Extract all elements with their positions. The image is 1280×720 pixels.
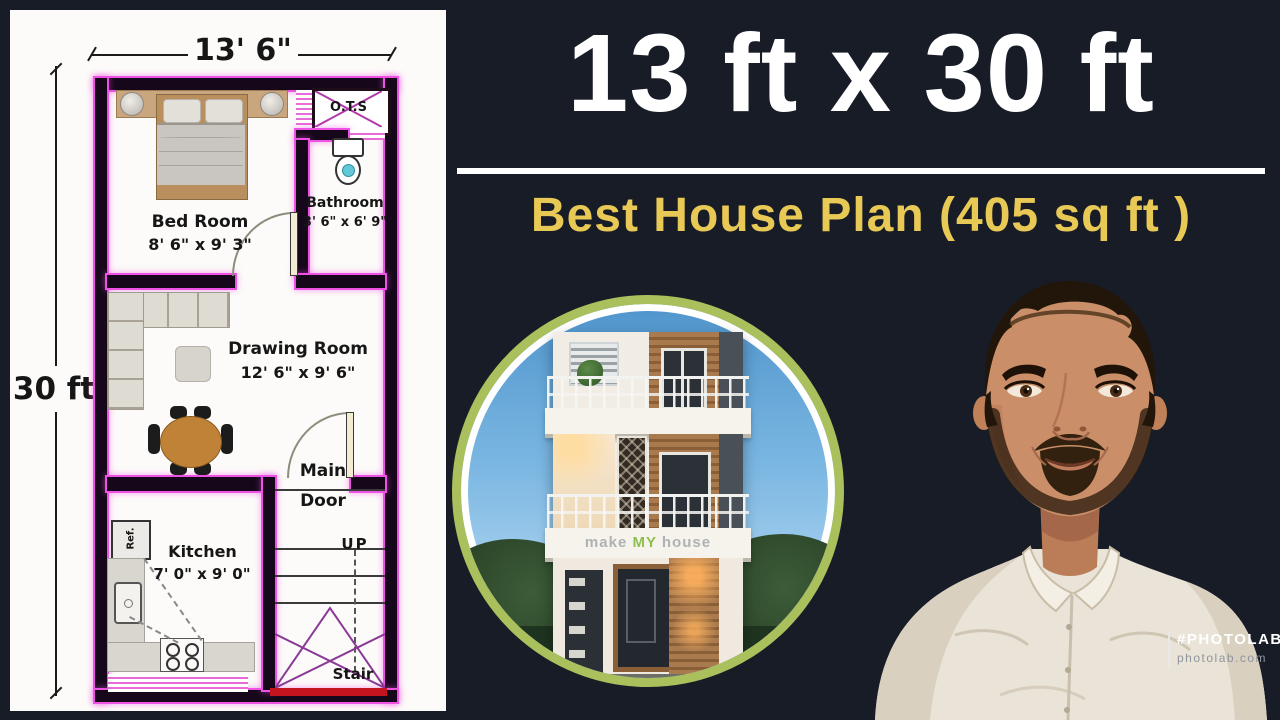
toilet-bowl-icon — [335, 155, 361, 185]
wall-kitchen-stair — [263, 477, 275, 690]
main-entrance-door — [613, 564, 675, 672]
stair-up-label: UP — [332, 536, 378, 553]
wood-panel-ground — [669, 558, 719, 678]
wall-drawing-bottom — [107, 477, 273, 491]
bedside-lamp-left — [120, 92, 144, 116]
pillow-left — [163, 99, 201, 123]
house-front: make MY house — [553, 332, 743, 678]
wall-bathroom-bottom — [296, 275, 385, 288]
kitchen-dims-label: 7' 0" x 9' 0" — [138, 566, 266, 583]
stair-label: Stair — [320, 666, 386, 683]
ots-hatch-left — [296, 90, 312, 130]
left-dimension-line-top — [55, 66, 57, 366]
brand-band: make MY house — [545, 528, 751, 562]
house-base-shadow — [545, 674, 751, 680]
bedroom-dims-label: 8' 6" x 9' 3" — [115, 236, 285, 254]
bedroom-name-label: Bed Room — [120, 213, 280, 232]
refrigerator-label: Ref. — [126, 521, 137, 557]
subtitle: Best House Plan (405 sq ft ) — [450, 188, 1272, 243]
stair-red-sill — [270, 688, 387, 696]
ots-box: O.T.S — [312, 88, 391, 136]
side-door-panel — [565, 570, 603, 678]
stair-tread — [275, 575, 385, 577]
wall-bedroom-bottom — [107, 275, 235, 288]
wall-left — [95, 78, 107, 702]
refrigerator: Ref. — [111, 520, 151, 560]
bathroom-name-label: Bathroom — [300, 196, 390, 211]
watermark-divider — [1168, 632, 1170, 668]
wall-right — [385, 78, 397, 702]
brand-watermark: make MY house — [545, 528, 751, 558]
main-title: 13 ft x 30 ft — [450, 16, 1272, 132]
kitchen-name-label: Kitchen — [150, 543, 255, 561]
kitchen-stove — [160, 638, 204, 672]
left-dimension-label: 30 ft — [8, 372, 100, 406]
bedside-lamp-right — [260, 92, 284, 116]
floor-plan-panel: 13' 6" 30 ft O.T.S — [10, 10, 446, 711]
pillow-right — [205, 99, 243, 123]
title-separator — [457, 168, 1265, 174]
balcony-railing-top — [547, 376, 749, 411]
dining-chair — [148, 424, 160, 454]
left-dimension-line-bottom — [55, 412, 57, 696]
house-elevation-photo: make MY house — [452, 295, 844, 687]
watermark-hashtag: #PHOTOLAB — [1177, 631, 1280, 648]
sofa-vertical — [108, 292, 144, 410]
dining-table — [160, 416, 222, 468]
top-dimension-line-right — [298, 54, 392, 56]
watermark-site: photolab.com — [1177, 651, 1280, 665]
stair-tread — [275, 489, 385, 491]
thumbnail-canvas: 13' 6" 30 ft O.T.S — [0, 0, 1280, 720]
kitchen-window-hatch — [108, 674, 248, 692]
drawing-dims-label: 12' 6" x 9' 6" — [227, 364, 369, 382]
bed — [156, 94, 248, 200]
drawing-name-label: Drawing Room — [222, 340, 374, 359]
top-dimension-label: 13' 6" — [183, 34, 303, 67]
brand-my: MY — [632, 534, 656, 551]
center-table — [175, 346, 211, 382]
balcony-railing-mid — [547, 494, 749, 531]
brand-make: make — [585, 534, 627, 551]
main-door-label-1: Main — [293, 462, 353, 481]
bed-duvet — [157, 123, 245, 185]
top-dimension-line-left — [92, 54, 188, 56]
bathroom-dims-label: 3' 6" x 6' 9" — [295, 216, 395, 230]
main-door-label-2: Door — [290, 492, 356, 511]
ots-label: O.T.S — [315, 101, 382, 115]
dining-chair — [221, 424, 233, 454]
brand-house: house — [662, 534, 711, 551]
